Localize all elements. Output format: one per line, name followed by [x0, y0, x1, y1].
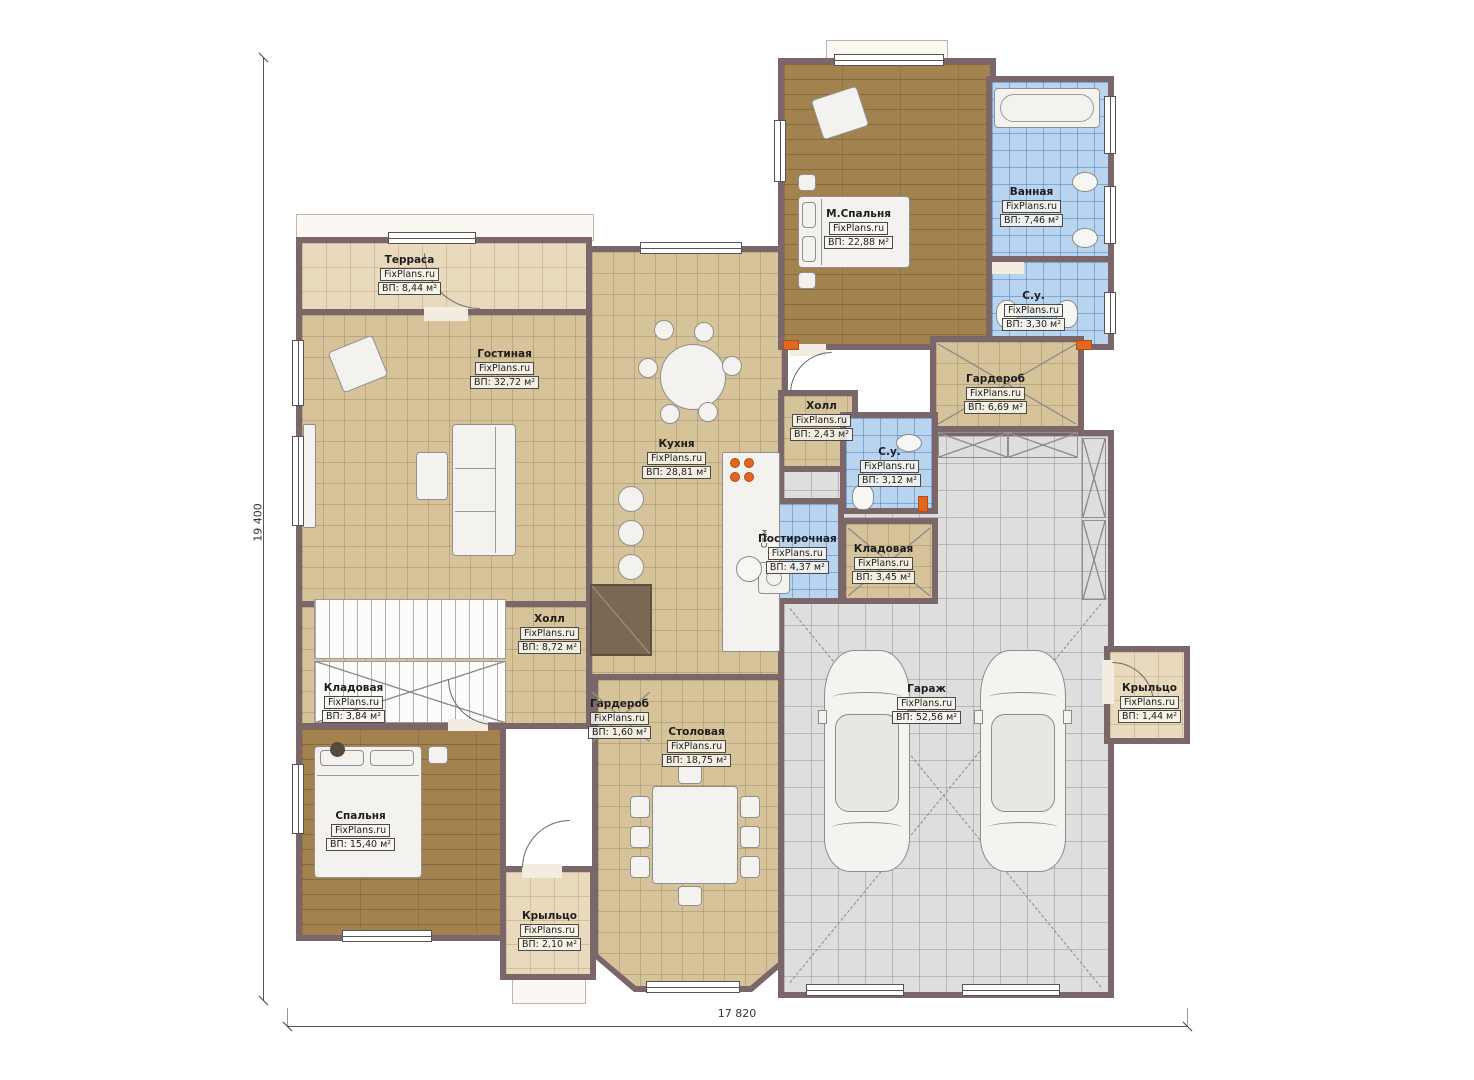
stove-burner-2 [744, 458, 754, 468]
kitchen-chair-2 [694, 322, 714, 342]
stove-burner-4 [744, 472, 754, 482]
window-master-top [834, 54, 944, 66]
kitchen-chair-1 [654, 320, 674, 340]
label-hall-main: Холл FixPlans.ru ВП: 8,72 м² [518, 613, 581, 654]
label-bedroom: Спальня FixPlans.ru ВП: 15,40 м² [326, 810, 395, 851]
window-bath-2 [1104, 186, 1116, 244]
label-laundry: Постирочная FixPlans.ru ВП: 4,37 м² [758, 533, 837, 574]
label-porch-bottom: Крыльцо FixPlans.ru ВП: 2,10 м² [518, 910, 581, 951]
window-wc-top [1104, 292, 1116, 334]
stove-burner-3 [730, 472, 740, 482]
window-dining-bottom [646, 981, 740, 993]
sofa-cushion-line-1 [455, 468, 495, 469]
door-gap-terrace [424, 307, 468, 321]
label-kitchen: Кухня FixPlans.ru ВП: 28,81 м² [642, 438, 711, 479]
car-mirror-left [818, 710, 827, 724]
label-dining: Столовая FixPlans.ru ВП: 18,75 м² [662, 726, 731, 767]
wc-mid-toilet [852, 484, 874, 510]
dimension-line-horizontal [287, 1026, 1187, 1027]
car-roof [991, 714, 1055, 812]
master-nightstand-2 [798, 272, 816, 289]
label-wardrobe-small: Гардероб FixPlans.ru ВП: 1,60 м² [588, 698, 651, 739]
label-wardrobe: Гардероб FixPlans.ru ВП: 6,69 м² [964, 373, 1027, 414]
door-arc-master [790, 352, 832, 394]
bar-stool-3 [618, 554, 644, 580]
label-wc-top: С.у. FixPlans.ru ВП: 3,30 м² [1002, 290, 1065, 331]
label-hall-small: Холл FixPlans.ru ВП: 2,43 м² [790, 400, 853, 441]
coffee-table [416, 452, 448, 500]
kitchen-chair-6 [698, 402, 718, 422]
label-living: Гостиная FixPlans.ru ВП: 32,72 м² [470, 348, 539, 389]
dining-chair-5 [740, 826, 760, 848]
window-living-1 [292, 340, 304, 406]
wardrobe-cabinet-1 [938, 432, 1008, 458]
garage-door-2 [962, 984, 1060, 996]
wardrobe-cabinet-2 [1008, 432, 1078, 458]
door-gap-bath [992, 262, 1024, 274]
garage-shelving-2 [1082, 520, 1106, 600]
master-pillow-1 [802, 202, 816, 228]
dining-chair-2 [630, 826, 650, 848]
car-windshield [988, 692, 1058, 703]
garage-shelving-1 [1082, 438, 1106, 518]
window-master-left [774, 120, 786, 182]
garage-door-1 [806, 984, 904, 996]
label-master: М.Спальня FixPlans.ru ВП: 22,88 м² [824, 208, 893, 249]
sofa [452, 424, 516, 556]
car-mirror-right [1063, 710, 1072, 724]
bar-stool-1 [618, 486, 644, 512]
radiator-3 [918, 496, 928, 512]
bar-stool-2 [618, 520, 644, 546]
radiator-2 [1076, 340, 1092, 350]
window-kitchen-top [640, 242, 742, 254]
window-living-2 [292, 436, 304, 526]
dining-chair-8 [678, 886, 702, 906]
car-rear-window [988, 822, 1058, 833]
bed-pillow-line [821, 199, 822, 265]
tv-console [303, 424, 316, 528]
dining-chair-1 [630, 796, 650, 818]
kitchen-chair-4 [722, 356, 742, 376]
bathtub [994, 88, 1100, 128]
bathtub-inner [1000, 94, 1094, 122]
pillow-2 [370, 750, 414, 766]
car-mirror-left [974, 710, 983, 724]
label-terrace: Терраса FixPlans.ru ВП: 8,44 м² [378, 254, 441, 295]
floor-plan-canvas: Ст.м Терраса FixPlans.ru ВП [0, 0, 1474, 1080]
label-storage-mid: Кладовая FixPlans.ru ВП: 3,45 м² [852, 543, 915, 584]
stove-burner-1 [730, 458, 740, 468]
kitchen-chair-5 [660, 404, 680, 424]
door-arc-entry [522, 820, 570, 868]
sofa-cushion-line-2 [455, 511, 495, 512]
bedroom-decor-dot [330, 742, 345, 757]
label-porch-right: Крыльцо FixPlans.ru ВП: 1,44 м² [1118, 682, 1181, 723]
label-bathroom: Ванная FixPlans.ru ВП: 7,46 м² [1000, 186, 1063, 227]
dining-chair-3 [630, 856, 650, 878]
window-terrace-top [388, 232, 476, 244]
radiator-1 [783, 340, 799, 350]
window-bedroom-bottom [342, 930, 432, 942]
car-roof [835, 714, 899, 812]
kitchen-chair-3 [638, 358, 658, 378]
dining-chair-6 [740, 856, 760, 878]
dimension-height-label: 19 400 [252, 483, 265, 563]
label-garage: Гараж FixPlans.ru ВП: 52,56 м² [892, 683, 961, 724]
window-bedroom-left [292, 764, 304, 834]
label-storage-left: Кладовая FixPlans.ru ВП: 3,84 м² [322, 682, 385, 723]
chimney-block [590, 584, 652, 656]
stairs-flight-upper [314, 599, 506, 659]
nightstand [428, 746, 448, 764]
window-bath-1 [1104, 96, 1116, 154]
sofa-back-line [495, 427, 496, 553]
car-right [980, 650, 1066, 872]
car-rear-window [832, 822, 902, 833]
dimension-width-label: 17 820 [287, 1007, 1187, 1020]
bath-sink-2 [1072, 228, 1098, 248]
kitchen-round-table [660, 344, 726, 410]
label-wc-mid: С.у. FixPlans.ru ВП: 3,12 м² [858, 446, 921, 487]
dining-table [652, 786, 738, 884]
dim-ext-right [1187, 1008, 1188, 1026]
master-nightstand-1 [798, 174, 816, 191]
bath-sink-1 [1072, 172, 1098, 192]
master-pillow-2 [802, 236, 816, 262]
dining-chair-4 [740, 796, 760, 818]
bed-blanket-line [317, 775, 419, 776]
